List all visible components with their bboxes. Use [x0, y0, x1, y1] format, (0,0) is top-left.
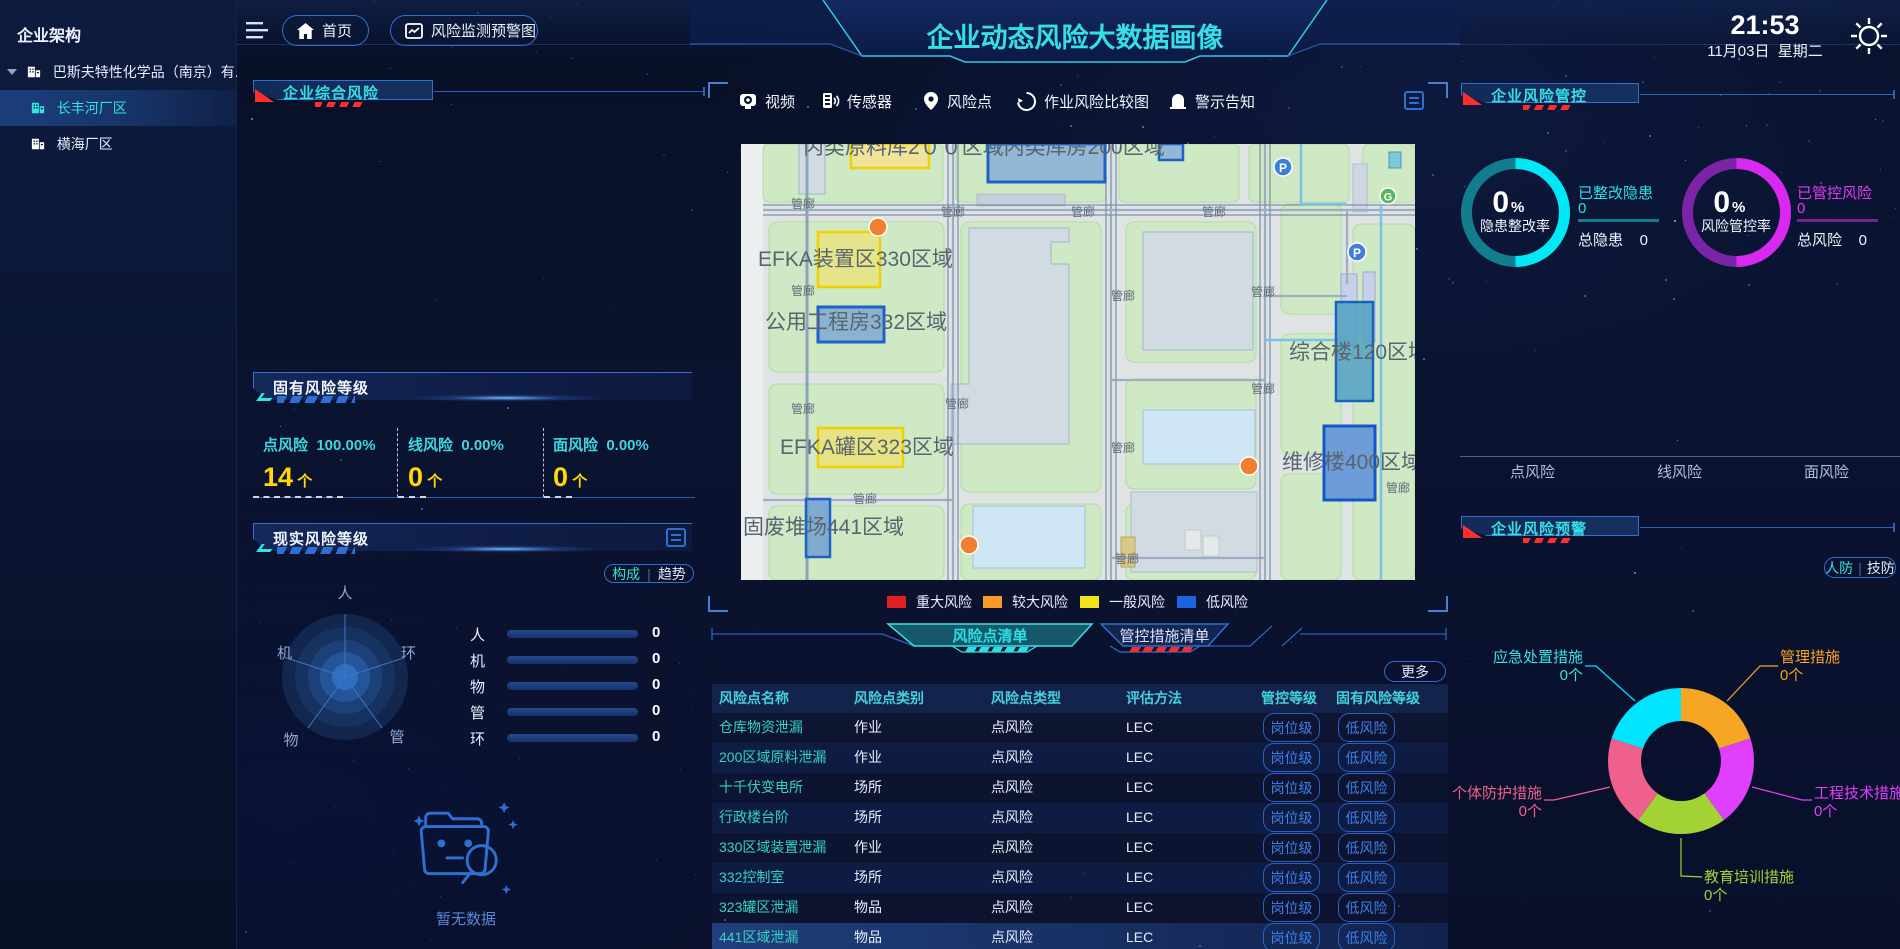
svg-text:0个: 0个 [1560, 667, 1583, 684]
svg-text:管廊: 管廊 [791, 196, 815, 211]
svg-text:P: P [1279, 161, 1287, 175]
svg-text:管廊: 管廊 [1111, 288, 1135, 303]
svg-text:工程技术措施: 工程技术措施 [1814, 785, 1900, 802]
svg-text:管廊: 管廊 [791, 283, 815, 298]
svg-text:EFKA罐区323区域: EFKA罐区323区域 [780, 436, 954, 459]
svg-text:管廊: 管廊 [1202, 204, 1226, 219]
svg-text:维修楼400区域: 维修楼400区域 [1282, 451, 1415, 474]
svg-text:0个: 0个 [1814, 803, 1837, 820]
svg-text:管廊: 管廊 [945, 396, 969, 411]
svg-text:管廊: 管廊 [1115, 551, 1139, 566]
svg-text:P: P [1353, 246, 1361, 260]
svg-text:管廊: 管廊 [791, 401, 815, 416]
svg-text:0: 0 [1492, 186, 1509, 219]
svg-text:人: 人 [337, 585, 352, 602]
svg-text:风险管控率: 风险管控率 [1701, 218, 1771, 234]
svg-text:0个: 0个 [1519, 803, 1542, 820]
svg-text:0: 0 [1713, 186, 1730, 219]
svg-text:环: 环 [401, 645, 416, 662]
svg-text:综合楼120区域: 综合楼120区域 [1289, 341, 1415, 364]
svg-text:管廊: 管廊 [1251, 284, 1275, 299]
svg-text:机: 机 [277, 645, 292, 662]
svg-text:%: % [1511, 199, 1524, 216]
svg-text:管廊: 管廊 [941, 204, 965, 219]
svg-text:个体防护措施: 个体防护措施 [1452, 785, 1542, 802]
svg-text:管廊: 管廊 [1071, 204, 1095, 219]
svg-text:应急处置措施: 应急处置措施 [1493, 648, 1583, 666]
svg-text:物: 物 [283, 732, 298, 749]
svg-text:管廊: 管廊 [1111, 440, 1135, 455]
svg-text:G: G [1384, 192, 1393, 204]
svg-text:公用工程房332区域: 公用工程房332区域 [765, 311, 947, 334]
svg-text:管理措施: 管理措施 [1780, 649, 1840, 666]
svg-text:0个: 0个 [1704, 887, 1727, 904]
svg-text:%: % [1732, 199, 1745, 216]
svg-text:管廊: 管廊 [1386, 480, 1410, 495]
svg-text:管廊: 管廊 [1251, 381, 1275, 396]
svg-text:教育培训措施: 教育培训措施 [1704, 869, 1794, 886]
svg-text:EFKA装置区330区域: EFKA装置区330区域 [758, 248, 953, 271]
svg-text:管廊: 管廊 [853, 491, 877, 506]
svg-text:固废堆场441区域: 固废堆场441区域 [743, 516, 904, 539]
svg-text:管: 管 [389, 729, 404, 746]
svg-text:0个: 0个 [1780, 667, 1803, 684]
svg-text:隐患整改率: 隐患整改率 [1480, 218, 1550, 234]
svg-text:丙类原料库2００区域内类库房200区域: 丙类原料库2００区域内类库房200区域 [803, 144, 1165, 159]
